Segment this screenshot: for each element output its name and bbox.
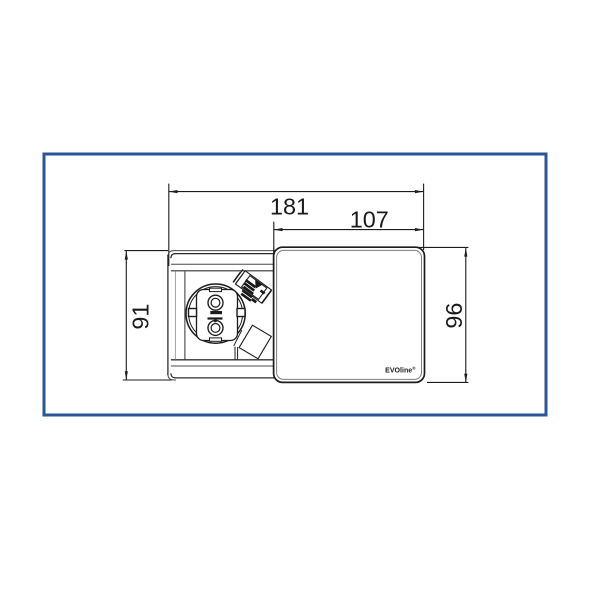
svg-text:91: 91: [128, 304, 154, 330]
svg-text:107: 107: [350, 207, 389, 233]
svg-text:181: 181: [270, 194, 309, 220]
svg-text:96: 96: [441, 303, 467, 329]
